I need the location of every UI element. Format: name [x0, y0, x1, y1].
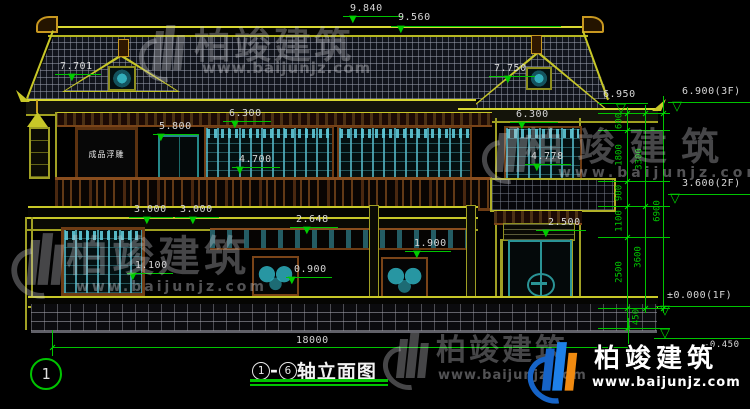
axis-bubble-label: 1	[41, 365, 50, 383]
dim-eave-right: 6.950	[603, 90, 636, 100]
gable-right-vent	[526, 67, 552, 90]
plinth-brick-base	[31, 304, 657, 333]
dim-door-2f: 5.800	[159, 122, 192, 132]
arrow-icon: ▼	[157, 133, 165, 143]
dim-total-width: 18000	[296, 336, 329, 346]
chain-dim-3600: 3600	[635, 246, 644, 268]
brand-name: 柏竣建筑	[594, 346, 718, 372]
ridge-ornament-left-icon	[36, 16, 58, 33]
dim-eave-left2: 6.300	[516, 110, 549, 120]
dim-bay1: 3.000	[134, 205, 167, 215]
chain-dim-2500: 2500	[616, 261, 625, 283]
arrow-icon: ▼	[143, 216, 151, 226]
watermark-logo-icon	[16, 232, 67, 292]
tower-finial-pole	[36, 100, 38, 113]
beam-2f	[55, 112, 492, 127]
dim-bay2: 3.000	[180, 205, 213, 215]
gable-left-vent	[108, 66, 136, 91]
title-underline-2	[250, 384, 388, 386]
porch-column-b	[466, 205, 476, 302]
watermark-logo-icon	[387, 332, 431, 384]
level-mark-icon: ▽	[672, 100, 682, 113]
arrow-icon: ▼	[68, 73, 76, 83]
arrow-icon: ▼	[189, 216, 197, 226]
door-handle-icon	[527, 273, 555, 297]
title-underline-1	[250, 379, 388, 382]
dim-gable-left: 7.701	[60, 62, 93, 72]
watermark-url: www.baijunjz.com	[202, 61, 371, 76]
title-axis-to: 6	[279, 362, 297, 380]
arrow-icon: ▼	[303, 226, 311, 236]
arrow-icon: ▼	[236, 166, 244, 176]
level-mark-icon: ▽	[670, 192, 680, 205]
chain-dim-450: 450	[633, 309, 642, 325]
relief-panel: 成品浮雕	[75, 127, 138, 182]
cad-elevation-canvas: 成品浮雕 9.840 ▼ 9.560 ▼ 7.701 ▼ 7.750 ▼ 6	[0, 0, 750, 409]
level-floor3: 6.900(3F)	[682, 87, 741, 97]
brand-url: www.baijunjz.com	[592, 376, 741, 389]
dim-ridge-main: 9.840	[350, 4, 383, 14]
dim-panel-b: 1.900	[414, 239, 447, 249]
tower-body	[29, 127, 50, 179]
watermark-logo-icon	[486, 126, 530, 178]
relief-panel-label: 成品浮雕	[89, 149, 125, 160]
watermark-brand: 柏竣建筑	[525, 128, 733, 166]
dim-ridge-right: 9.560	[398, 13, 431, 23]
level-floor1: ±0.000(1F)	[667, 291, 732, 301]
watermark-logo-icon	[143, 24, 187, 76]
arrow-icon: ▼	[542, 229, 550, 239]
chain-dim-6900: 6900	[654, 200, 663, 222]
chain-dim-900: 900	[616, 185, 625, 201]
ornament-panel-b	[381, 257, 428, 299]
dim-panel-a: 0.900	[294, 265, 327, 275]
window-band-2f-right	[337, 126, 472, 182]
dim-window-2f: 4.700	[239, 155, 272, 165]
dim-gable-right: 7.750	[494, 64, 527, 74]
arrow-icon: ▼	[231, 120, 239, 130]
title-axis-from: 1	[252, 362, 270, 380]
gable-right-finial-icon	[531, 35, 542, 54]
chain-dim-1100: 1100	[616, 210, 625, 232]
dim-eave-left: 6.300	[229, 109, 262, 119]
arrow-icon: ▼	[397, 25, 405, 35]
gable-left-finial-icon	[118, 39, 129, 57]
arrow-icon: ▼	[413, 250, 421, 260]
arrow-icon: ▼	[288, 276, 296, 286]
watermark-url: www.baijunjz.com	[76, 280, 267, 294]
arrow-icon: ▼	[504, 75, 512, 85]
porch-column-a	[369, 205, 379, 302]
dim-porch-rail: 2.648	[296, 215, 329, 225]
dim-door-1f: 2.500	[548, 218, 581, 228]
watermark-url: www.baijunjz.com	[558, 166, 750, 180]
axis-bubble-1: 1	[30, 358, 62, 390]
ridge-ornament-right-icon	[582, 16, 604, 33]
brand-logo-icon	[532, 341, 580, 397]
watermark-brand: 柏竣建筑	[66, 236, 250, 278]
